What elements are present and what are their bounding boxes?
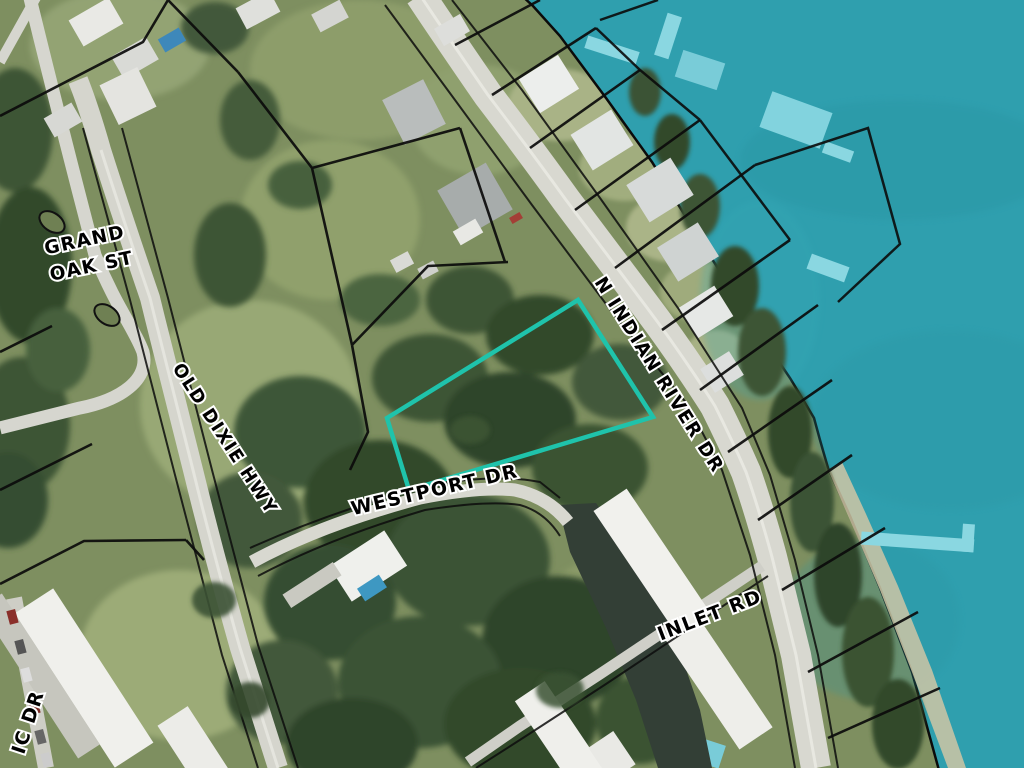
map-canvas[interactable]: , GRAND OAK ST OLD DIXIE HWY N INDIAN RI…	[0, 0, 1024, 768]
aerial-map[interactable]: , GRAND OAK ST OLD DIXIE HWY N INDIAN RI…	[0, 0, 1024, 768]
